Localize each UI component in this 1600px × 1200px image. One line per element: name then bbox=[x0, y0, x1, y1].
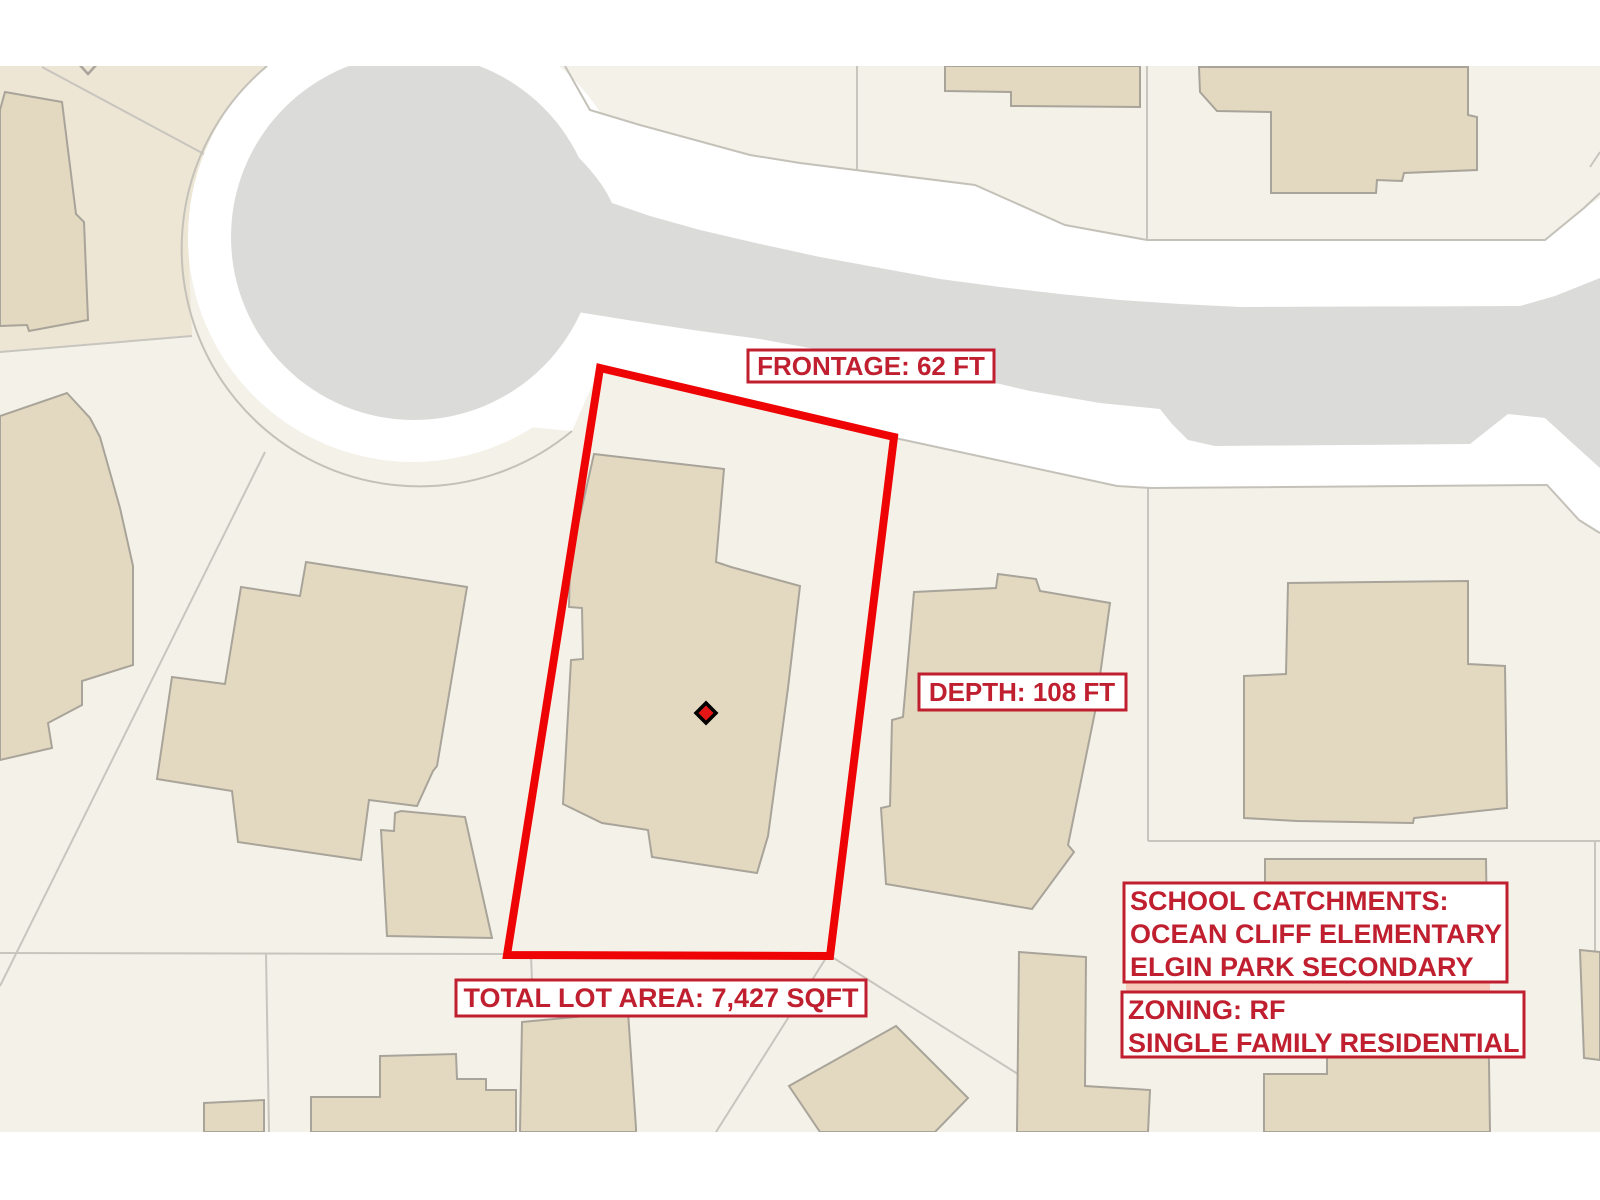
svg-text:SCHOOL CATCHMENTS:: SCHOOL CATCHMENTS: bbox=[1130, 886, 1449, 916]
svg-text:FRONTAGE: 62 FT: FRONTAGE: 62 FT bbox=[757, 351, 985, 381]
svg-text:ELGIN PARK SECONDARY: ELGIN PARK SECONDARY bbox=[1130, 952, 1474, 982]
svg-text:TOTAL LOT AREA: 7,427 SQFT: TOTAL LOT AREA: 7,427 SQFT bbox=[463, 983, 859, 1013]
svg-text:ZONING: RF: ZONING: RF bbox=[1128, 995, 1285, 1025]
svg-text:SINGLE FAMILY RESIDENTIAL: SINGLE FAMILY RESIDENTIAL bbox=[1128, 1028, 1520, 1058]
svg-text:OCEAN CLIFF ELEMENTARY: OCEAN CLIFF ELEMENTARY bbox=[1130, 919, 1502, 949]
svg-text:DEPTH: 108 FT: DEPTH: 108 FT bbox=[929, 677, 1115, 707]
